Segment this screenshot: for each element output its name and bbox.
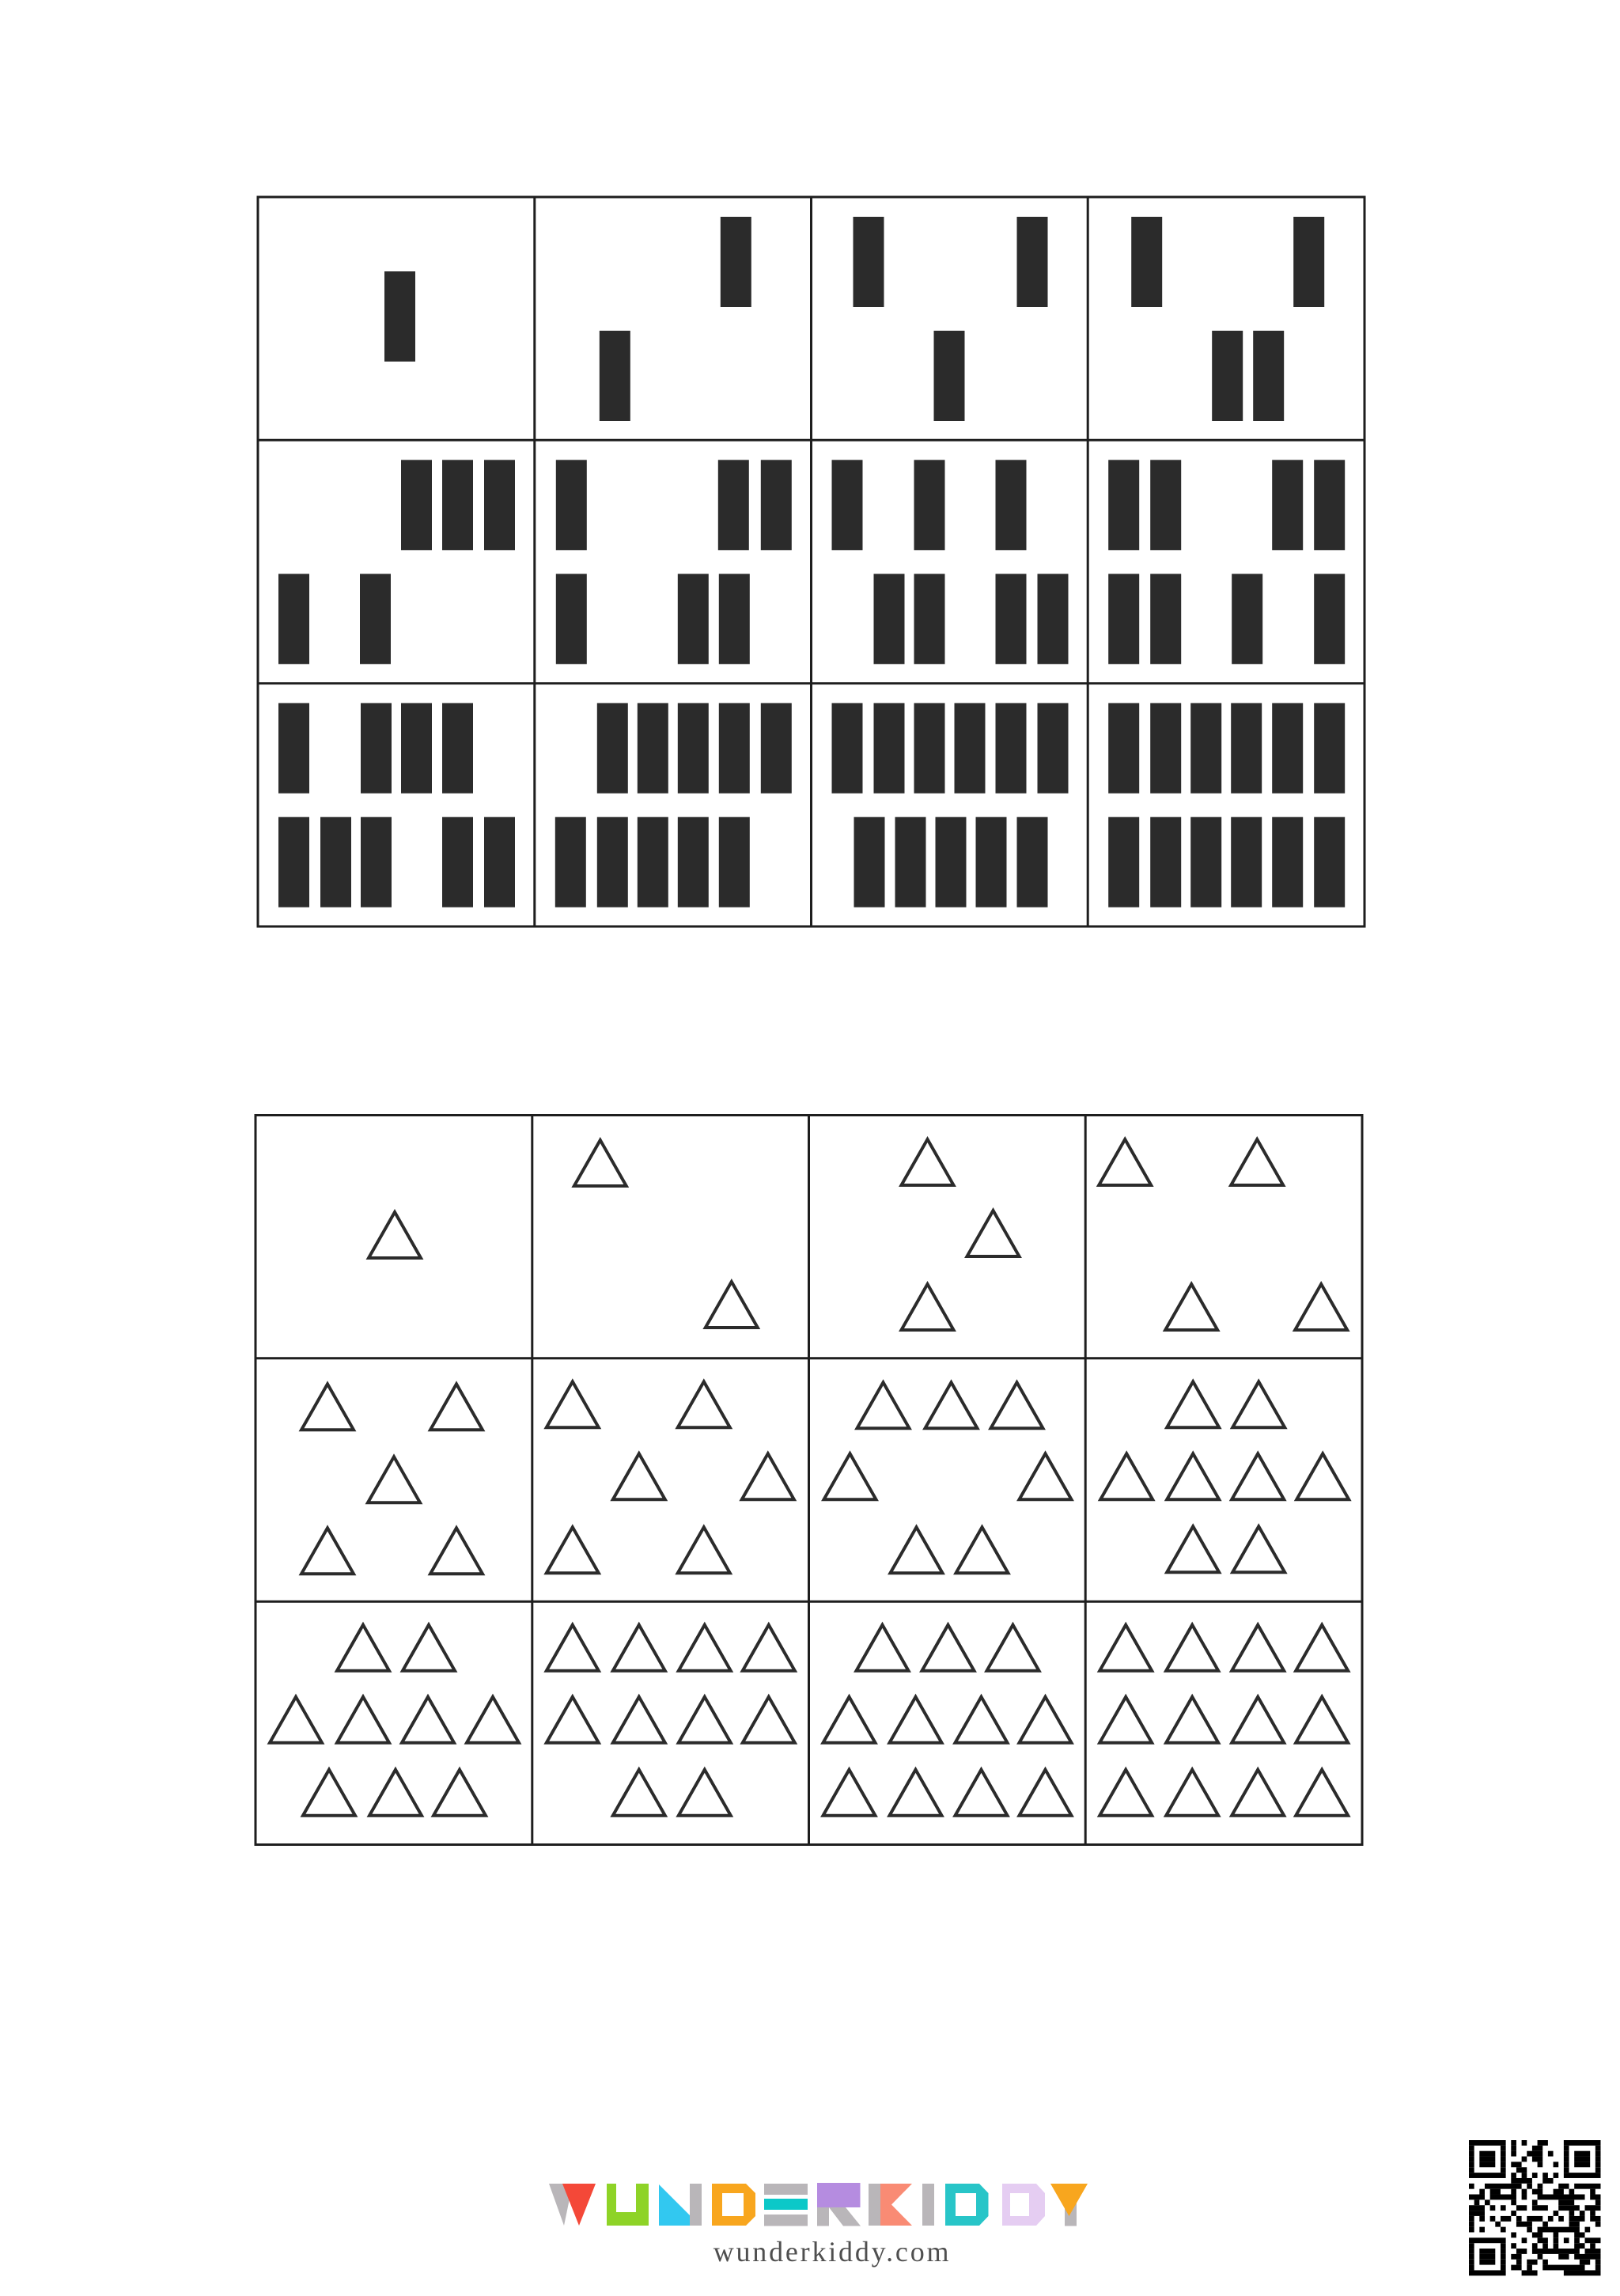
svg-text:wunderkiddy.com: wunderkiddy.com (713, 2236, 952, 2268)
